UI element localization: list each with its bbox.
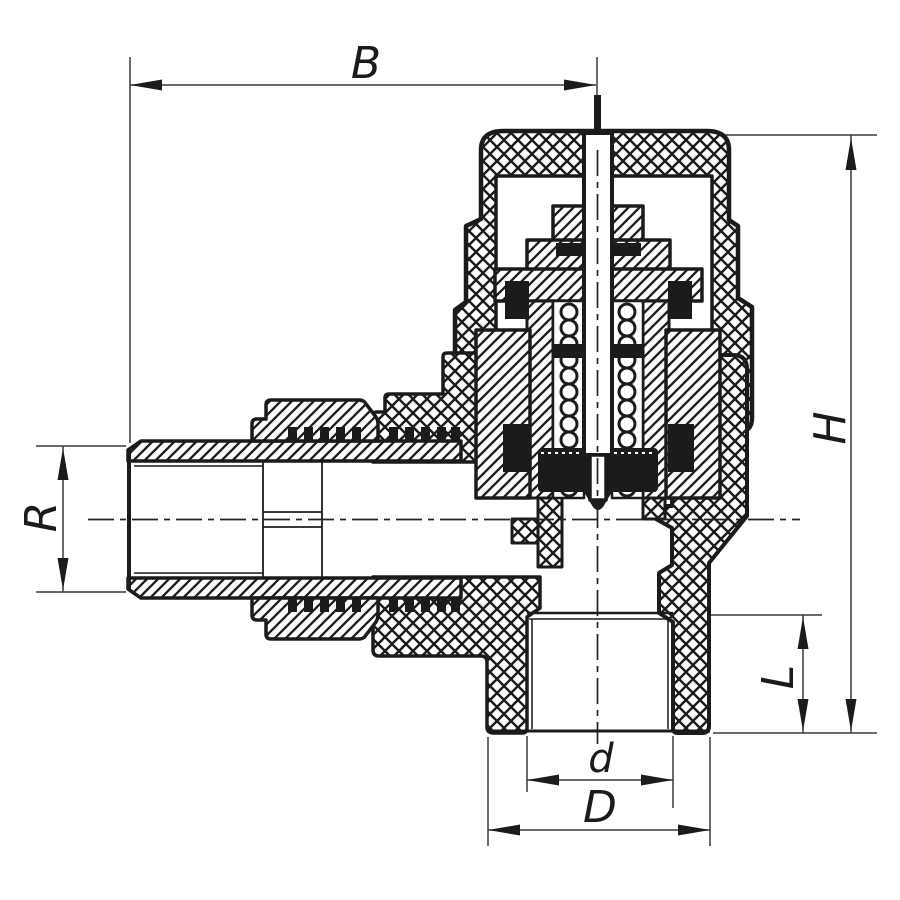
seat-right-nub xyxy=(643,497,665,519)
dimension-label-r: R xyxy=(16,502,67,533)
valve-section-drawing: B H R L d D xyxy=(0,0,900,900)
technical-drawing-canvas: B H R L d D xyxy=(0,0,900,900)
tailpiece-top-wall xyxy=(128,441,461,461)
dimension-label-l: L xyxy=(753,665,804,690)
seat-left-column xyxy=(538,497,562,567)
dimension-label-d-inner: d xyxy=(588,736,614,782)
seat-left-flange xyxy=(512,519,538,543)
gland-column-right xyxy=(666,330,720,498)
dimension-label-h: H xyxy=(805,411,856,444)
stem-tip xyxy=(594,95,601,133)
tailpiece-bottom-wall xyxy=(128,578,461,598)
dimension-label-b: B xyxy=(351,38,381,89)
dimension-label-d-outer: D xyxy=(583,782,617,833)
gland-column-left xyxy=(476,330,530,498)
